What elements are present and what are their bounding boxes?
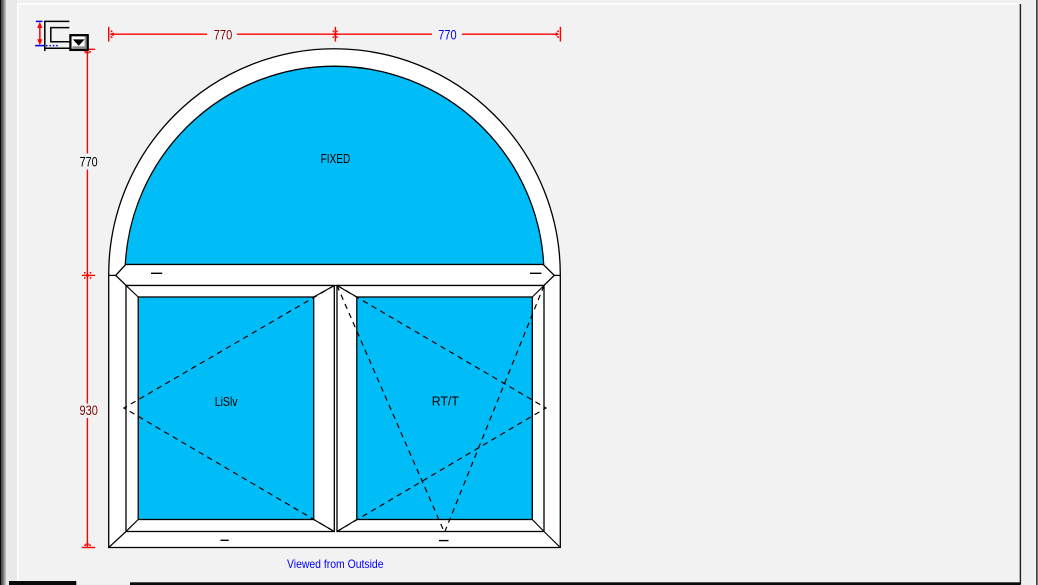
svg-text:LiSlv: LiSlv xyxy=(215,394,238,409)
svg-text:Viewed from Outside: Viewed from Outside xyxy=(287,557,384,571)
svg-text:RT/T: RT/T xyxy=(432,394,459,409)
svg-text:930: 930 xyxy=(80,402,99,418)
svg-text:770: 770 xyxy=(214,26,233,42)
svg-text:770: 770 xyxy=(80,154,98,170)
svg-text:FIXED: FIXED xyxy=(321,151,351,166)
svg-text:770: 770 xyxy=(438,26,457,42)
